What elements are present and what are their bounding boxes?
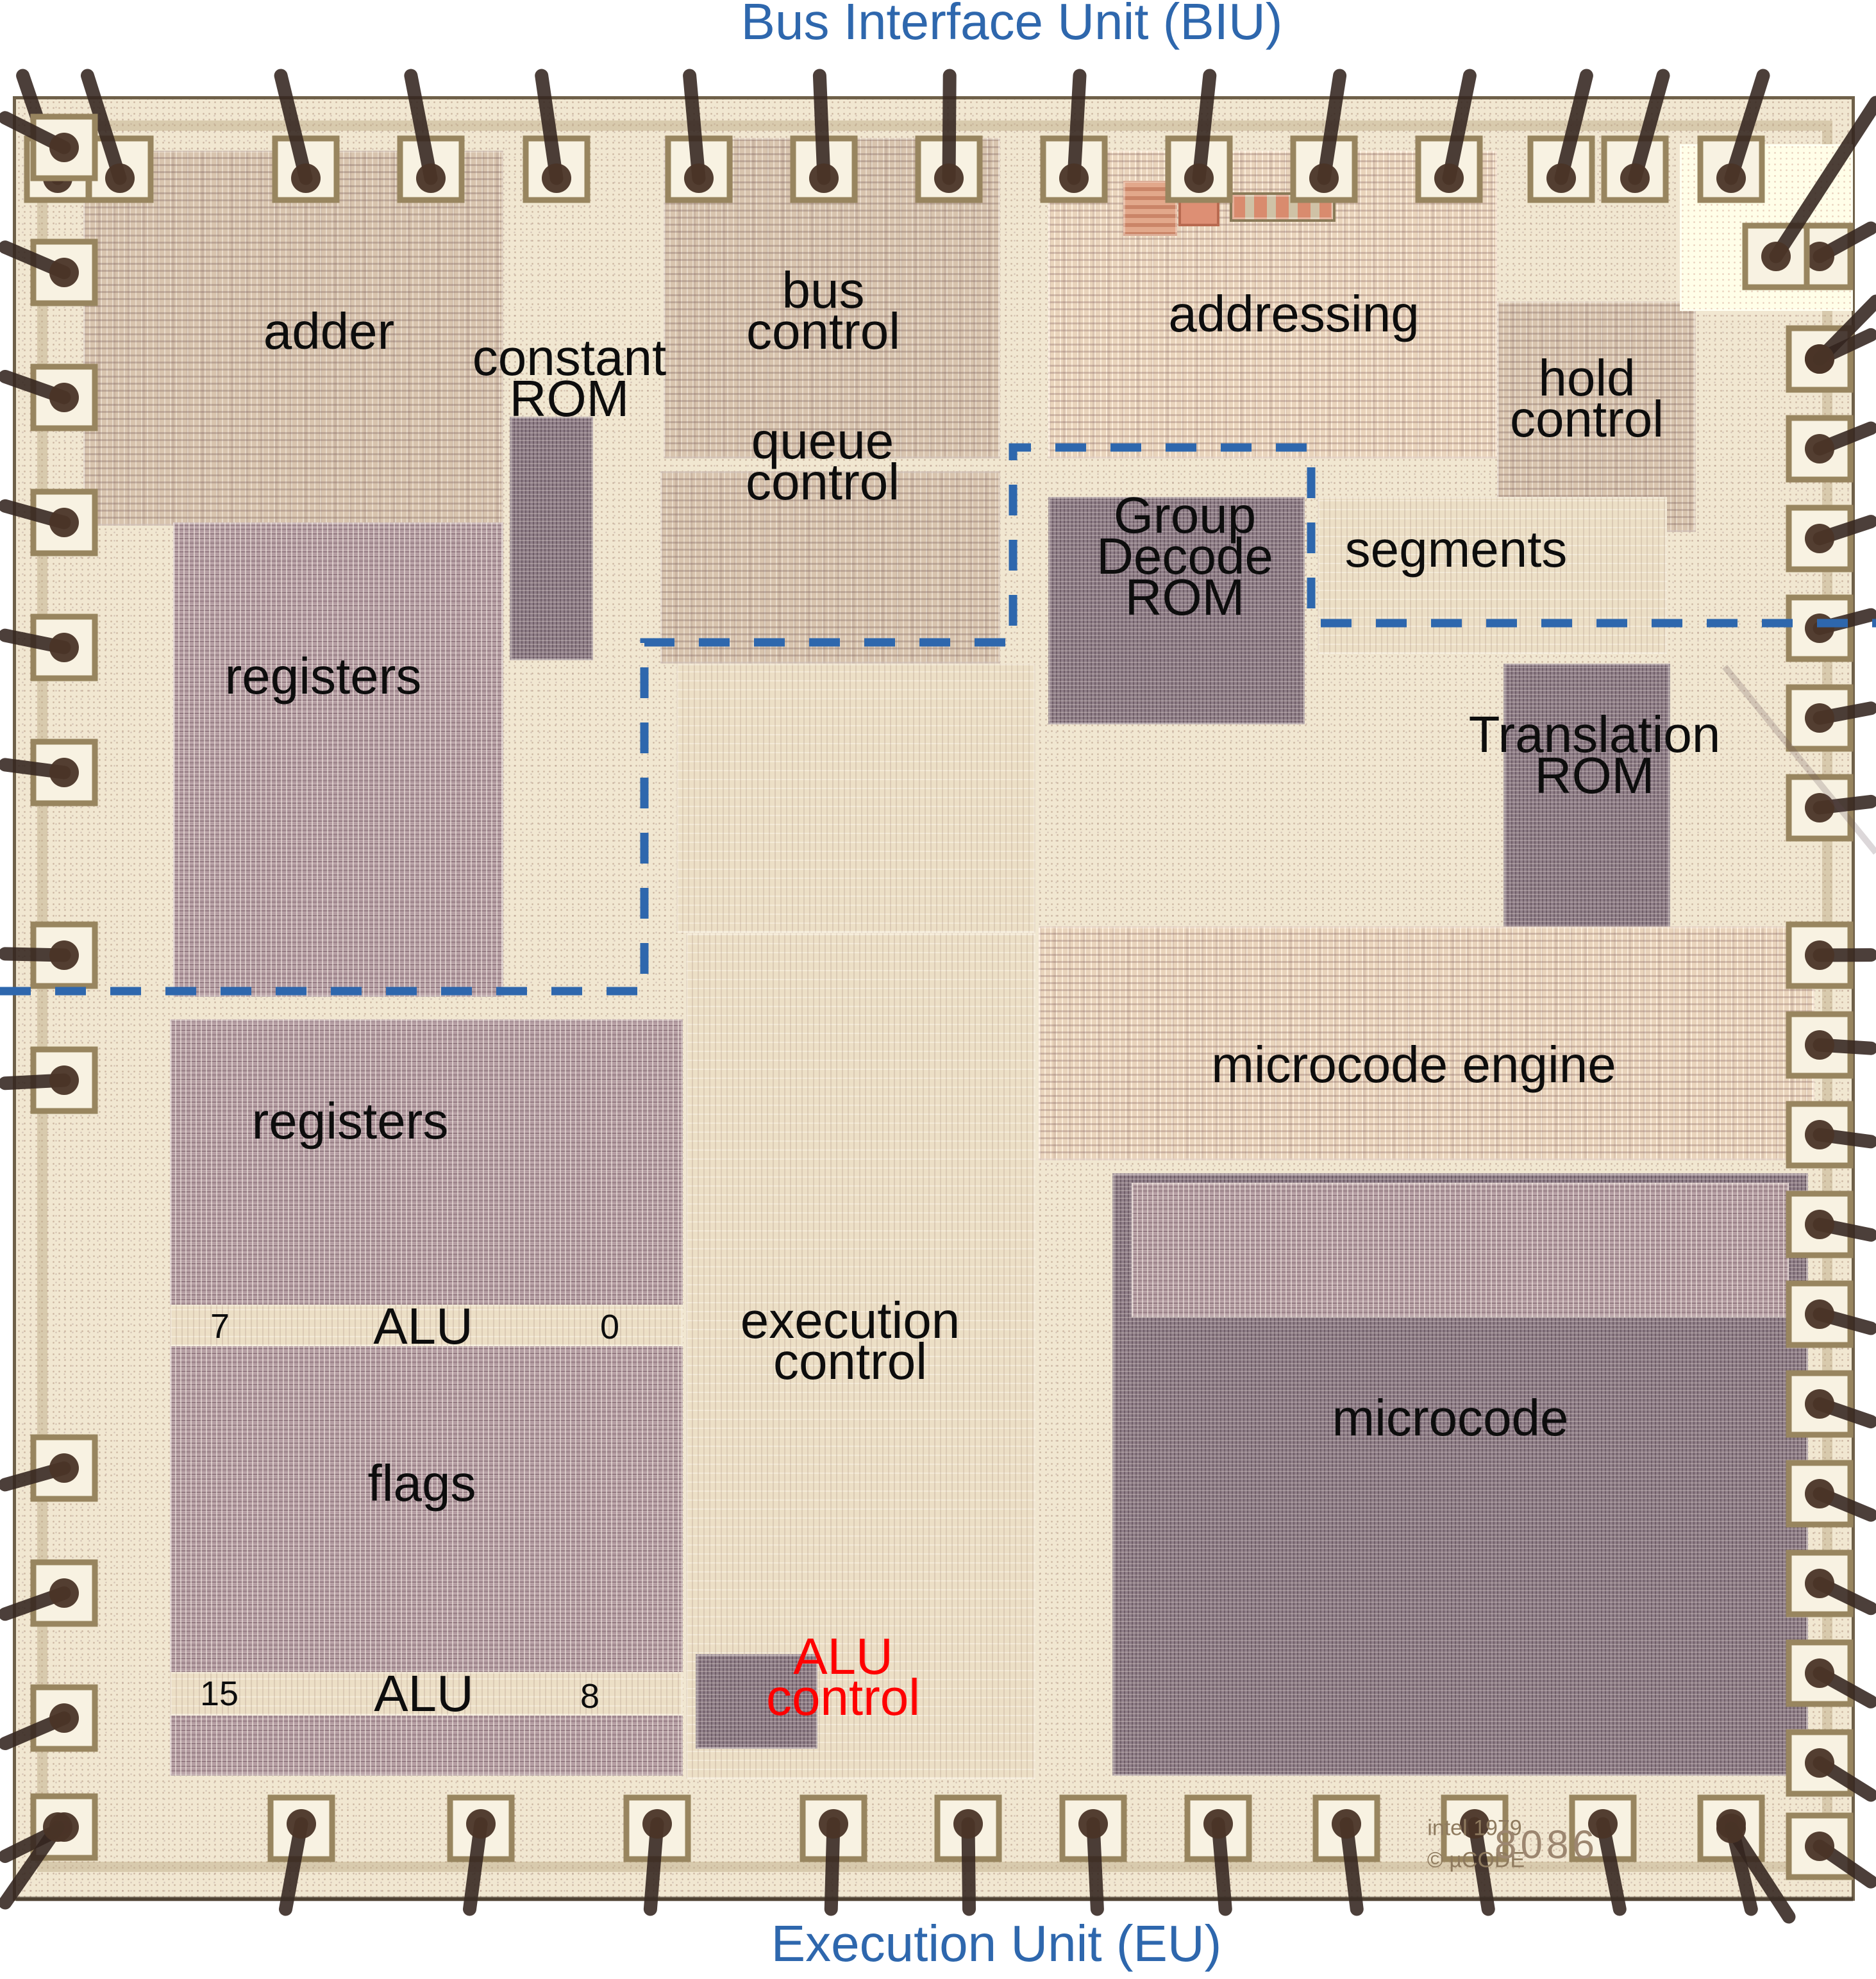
- label-translation-rom: Translation ROM: [1469, 714, 1721, 796]
- title-bus-interface-unit: Bus Interface Unit (BIU): [741, 0, 1283, 51]
- label-alu-high: ALU: [373, 1306, 473, 1347]
- annotated-die-photo: Bus Interface Unit (BIU) Execution Unit …: [0, 0, 1876, 1979]
- region-top-right-corner: [1680, 144, 1853, 311]
- label-alu-control: ALU control: [766, 1636, 920, 1718]
- label-constant-rom: constant ROM: [473, 337, 666, 419]
- region-mid-routing: [676, 664, 1035, 933]
- test-structure: [1230, 192, 1336, 222]
- label-group-decode-rom: Group Decode ROM: [1096, 495, 1273, 618]
- label-segments: segments: [1345, 529, 1568, 570]
- test-structure: [1123, 181, 1177, 236]
- label-addressing: addressing: [1168, 294, 1419, 335]
- label-queue-control: queue control: [746, 421, 900, 503]
- label-alu-low-bit8: 8: [580, 1676, 599, 1717]
- region-registers-biu: [173, 522, 503, 997]
- label-execution-control: execution control: [741, 1300, 960, 1382]
- region-constant-rom: [510, 417, 593, 660]
- label-alu-high-bit0: 0: [600, 1307, 619, 1348]
- label-registers-eu: registers: [252, 1101, 449, 1142]
- label-alu-low-bit15: 15: [200, 1673, 239, 1714]
- label-bus-control: bus control: [746, 270, 900, 352]
- test-structure: [1178, 153, 1219, 226]
- die-marking-part-number: 8086: [1495, 1823, 1598, 1868]
- label-flags: flags: [368, 1463, 476, 1504]
- region-microcode-topband: [1132, 1183, 1789, 1317]
- label-microcode-engine: microcode engine: [1211, 1044, 1616, 1085]
- label-microcode: microcode: [1332, 1398, 1568, 1439]
- title-execution-unit: Execution Unit (EU): [771, 1914, 1221, 1973]
- label-alu-low: ALU: [374, 1673, 474, 1714]
- label-registers-biu: registers: [225, 656, 422, 697]
- label-alu-high-bit7: 7: [210, 1306, 230, 1347]
- label-hold-control: hold control: [1510, 358, 1664, 440]
- label-adder: adder: [264, 311, 395, 352]
